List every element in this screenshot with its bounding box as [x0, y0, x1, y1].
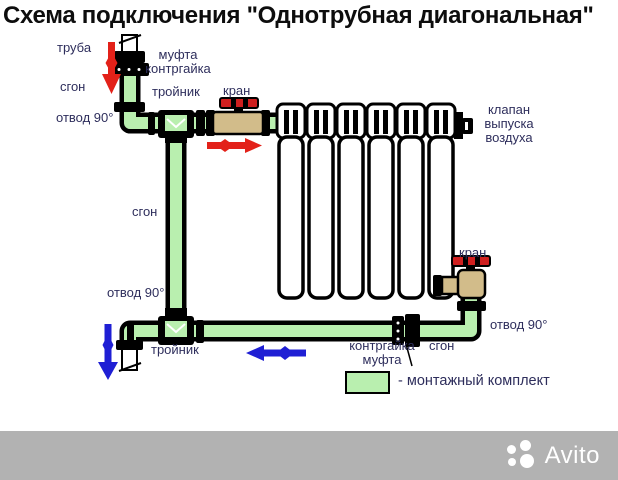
- return-flow-arrow-down: [98, 324, 118, 380]
- label-otvod90-top-left: отвод 90°: [56, 111, 113, 125]
- label-mufta-kontrgayka-top: муфта контргайка: [140, 48, 216, 76]
- label-troynik-top: тройник: [152, 85, 200, 99]
- label-sgon-bottom: сгон: [429, 339, 454, 353]
- legend: - монтажный комплект: [345, 371, 550, 394]
- label-sgon-middle: сгон: [132, 205, 157, 219]
- avito-watermark: Avito: [506, 440, 600, 471]
- tee-bottom: [158, 316, 194, 345]
- legend-label: - монтажный комплект: [398, 371, 550, 389]
- label-otvod90-bottom-right: отвод 90°: [490, 318, 547, 332]
- label-kran-top: кран: [223, 84, 250, 98]
- label-truba: труба: [57, 41, 91, 55]
- radiator: [277, 104, 455, 298]
- watermark-bar: Avito: [0, 431, 618, 480]
- screenshot-root: Схема подключения "Однотрубная диагональ…: [0, 0, 618, 480]
- label-sgon-top: сгон: [60, 80, 85, 94]
- supply-flow-arrow-right: [207, 138, 262, 153]
- label-troynik-bottom: тройник: [151, 343, 199, 357]
- label-air-valve: клапан выпуска воздуха: [470, 103, 548, 144]
- legend-swatch: [345, 371, 390, 394]
- valve-top: [206, 98, 270, 136]
- avito-wordmark: Avito: [545, 442, 600, 470]
- piping-diagram: [0, 0, 618, 480]
- label-kontrgayka-mufta-bottom: контргайка муфта: [342, 339, 422, 367]
- avito-logo-icon: [506, 440, 536, 471]
- label-kran-bottom: кран: [459, 246, 486, 260]
- return-flow-arrow-left: [246, 345, 306, 361]
- label-otvod90-bottom-left: отвод 90°: [107, 286, 164, 300]
